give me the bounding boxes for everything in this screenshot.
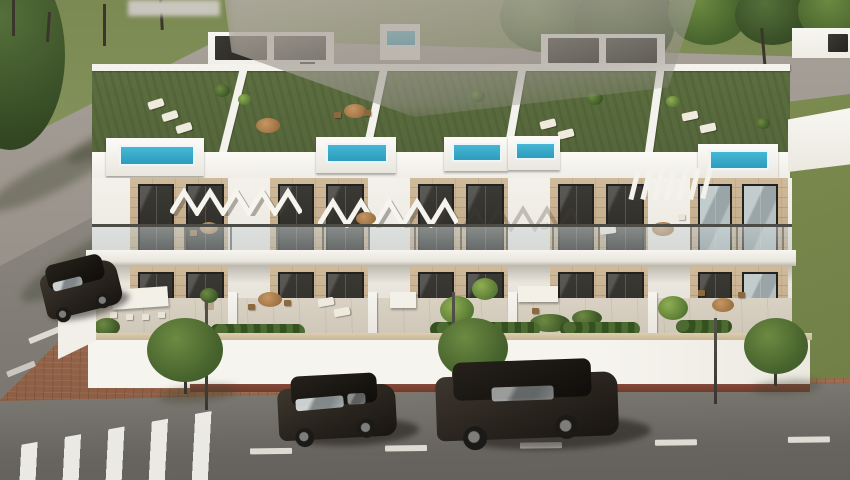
rooftop-pool	[326, 143, 388, 163]
pergola-slats	[632, 168, 712, 202]
rooftop-pool	[119, 145, 195, 166]
patio-chair	[142, 314, 149, 320]
balcony-chair	[678, 214, 685, 220]
roof-solar-panel	[828, 34, 848, 52]
patio-table	[712, 298, 734, 312]
rooftop-pool-platform	[316, 137, 396, 173]
lane-dash	[788, 436, 830, 443]
patio-chair	[248, 304, 255, 310]
balcony-slab	[86, 250, 796, 266]
rooftop-pool-platform	[106, 138, 204, 176]
patio-table	[258, 292, 282, 307]
street-light-pole	[714, 318, 717, 404]
patio-chair	[532, 308, 539, 314]
patio-chair	[284, 300, 291, 306]
rooftop-pool-platform	[508, 136, 560, 170]
background-building	[128, 0, 220, 16]
lane-dash	[655, 439, 697, 446]
potted-plant	[200, 288, 218, 303]
patio-sofa	[518, 286, 558, 302]
terrace-table	[344, 104, 366, 118]
neighbor-roof	[792, 28, 850, 58]
patio-palm	[658, 296, 688, 320]
patio-palm	[472, 278, 498, 300]
hedge	[676, 320, 732, 333]
rooftop-pool	[452, 143, 502, 162]
terrace-chair	[334, 112, 341, 118]
parked-car-suv	[434, 349, 638, 460]
terrace-plant	[214, 84, 230, 97]
architectural-render-scene	[0, 0, 850, 480]
patio-chair	[738, 292, 745, 298]
patio-chair	[158, 312, 165, 318]
rooftop-pool	[515, 142, 556, 160]
street-tree	[744, 318, 808, 374]
terrace-plant	[666, 96, 680, 107]
rooftop-pool-platform	[444, 137, 508, 171]
terrace-table	[256, 118, 280, 133]
patio-chair	[698, 290, 705, 296]
patio-sofa	[390, 292, 416, 308]
street-tree	[147, 318, 223, 382]
terrace-plant	[238, 94, 251, 105]
pergola-zigzag	[170, 186, 302, 216]
tree-trunk	[103, 4, 106, 46]
tree-trunk	[12, 0, 15, 36]
terrace-plant	[756, 118, 770, 129]
rooftop-pool	[709, 150, 769, 170]
terrace-chair	[364, 110, 371, 116]
parked-car-hatchback	[276, 365, 412, 456]
